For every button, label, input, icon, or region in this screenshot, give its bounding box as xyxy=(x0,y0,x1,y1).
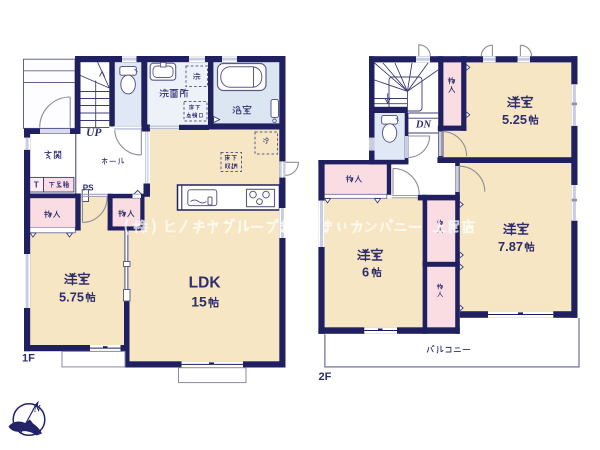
svg-text:6: 6 xyxy=(362,265,369,280)
svg-text:T: T xyxy=(34,181,39,190)
svg-text:5.75: 5.75 xyxy=(59,290,84,305)
svg-text:PS: PS xyxy=(83,183,94,192)
svg-text:5.25: 5.25 xyxy=(502,112,527,127)
svg-text:UP: UP xyxy=(86,127,102,139)
svg-text:1F: 1F xyxy=(22,353,35,365)
svg-text:15: 15 xyxy=(191,294,207,310)
svg-text:2F: 2F xyxy=(319,371,332,383)
svg-text:LDK: LDK xyxy=(189,275,222,292)
svg-text:N: N xyxy=(33,405,42,415)
svg-text:7.87: 7.87 xyxy=(498,239,523,254)
svg-text:DN: DN xyxy=(415,119,432,130)
